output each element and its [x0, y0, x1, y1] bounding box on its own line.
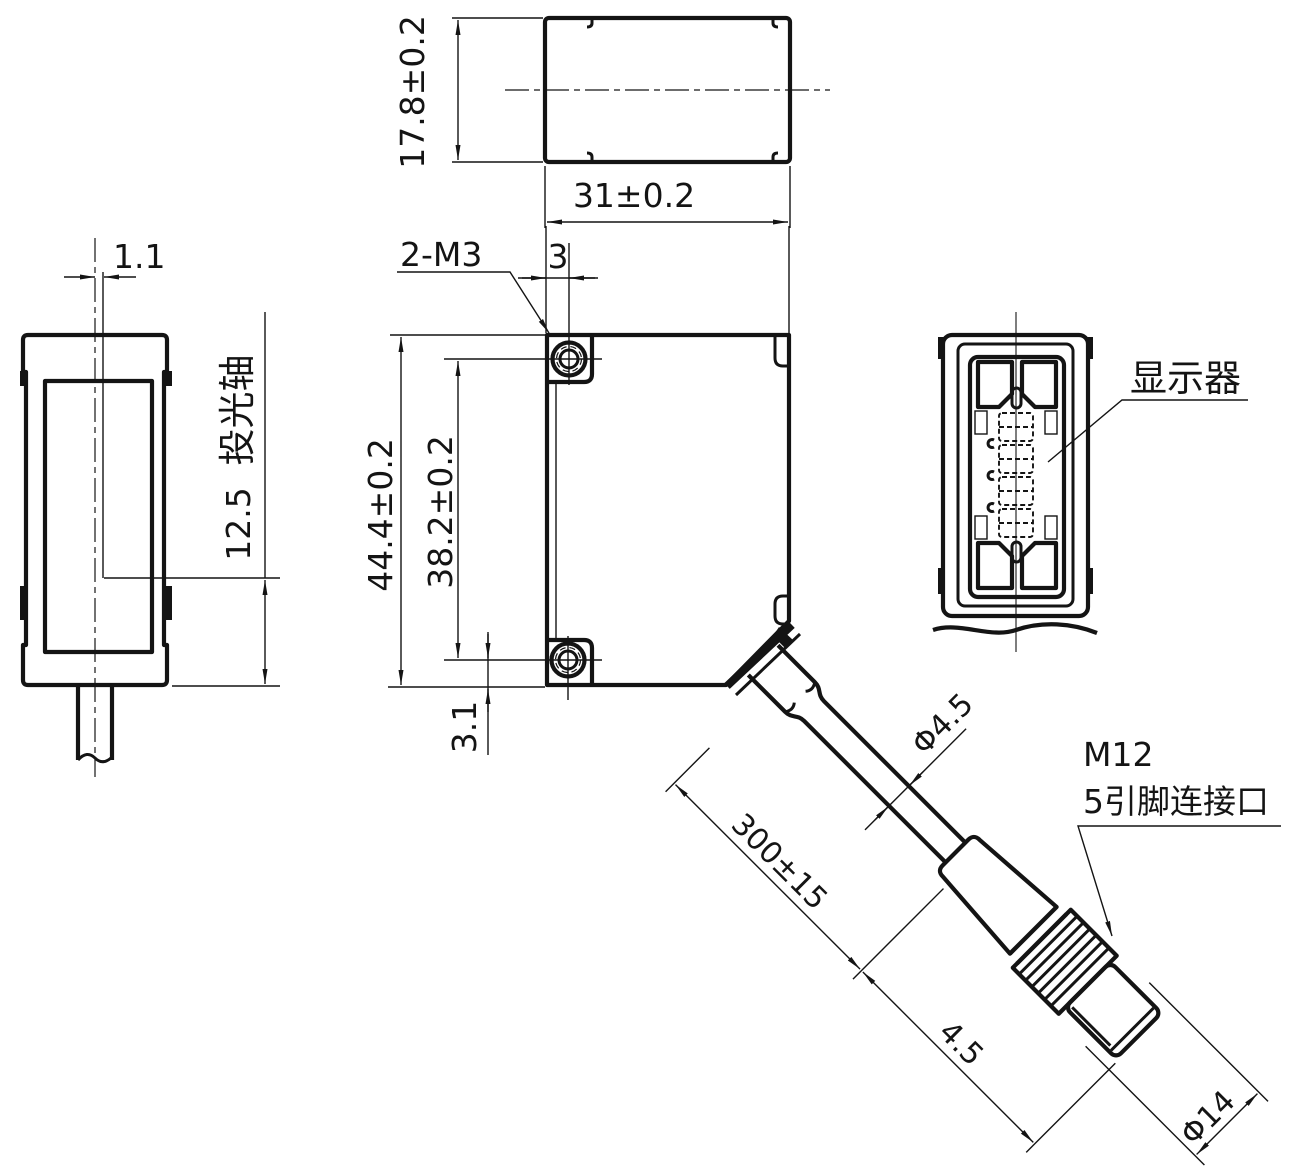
front-view: 2-M3 3 44.4±0.2 38.2±0.2 3.1: [361, 226, 800, 755]
dim-top-width: 31±0.2: [573, 176, 695, 215]
button-top-left: [978, 362, 1012, 407]
drawing-canvas: 17.8±0.2 31±0.2 1.1 投光轴 12.5: [0, 0, 1302, 1176]
dim-body-height: 44.4±0.2: [361, 438, 400, 592]
display-view: 显示器: [933, 312, 1248, 652]
seven-segment-display: [988, 413, 1033, 537]
button-bottom-left: [978, 543, 1012, 588]
top-view: 17.8±0.2 31±0.2: [393, 15, 830, 228]
button-bottom-right: [1022, 543, 1056, 588]
dim-hole-spacing: 38.2±0.2: [421, 435, 460, 589]
dim-axis-height: 12.5: [219, 487, 258, 560]
button-top-right: [1022, 362, 1056, 407]
callout-thread: 2-M3: [400, 235, 482, 274]
label-connector-type: M12: [1083, 735, 1153, 774]
dim-top-height: 17.8±0.2: [393, 15, 432, 169]
label-optical-axis: 投光轴: [216, 355, 259, 466]
dim-connector-section: 4.5: [932, 1015, 990, 1073]
dim-cable-diameter: Φ4.5: [905, 687, 980, 762]
dim-cable-length: 300±15: [724, 807, 834, 917]
engineering-drawing-sensor: 17.8±0.2 31±0.2 1.1 投光轴 12.5: [0, 0, 1302, 1176]
label-connector-desc: 5引脚连接口: [1083, 782, 1269, 821]
side-view: 1.1 投光轴 12.5: [20, 237, 280, 777]
dim-bottom-offset: 3.1: [445, 701, 484, 753]
connector-callout: M12 5引脚连接口: [1078, 735, 1281, 936]
label-display: 显示器: [1130, 357, 1241, 400]
dim-hole-offset: 3: [548, 237, 569, 276]
dim-axis-offset: 1.1: [113, 237, 165, 276]
dim-connector-diameter: Φ14: [1174, 1084, 1242, 1152]
